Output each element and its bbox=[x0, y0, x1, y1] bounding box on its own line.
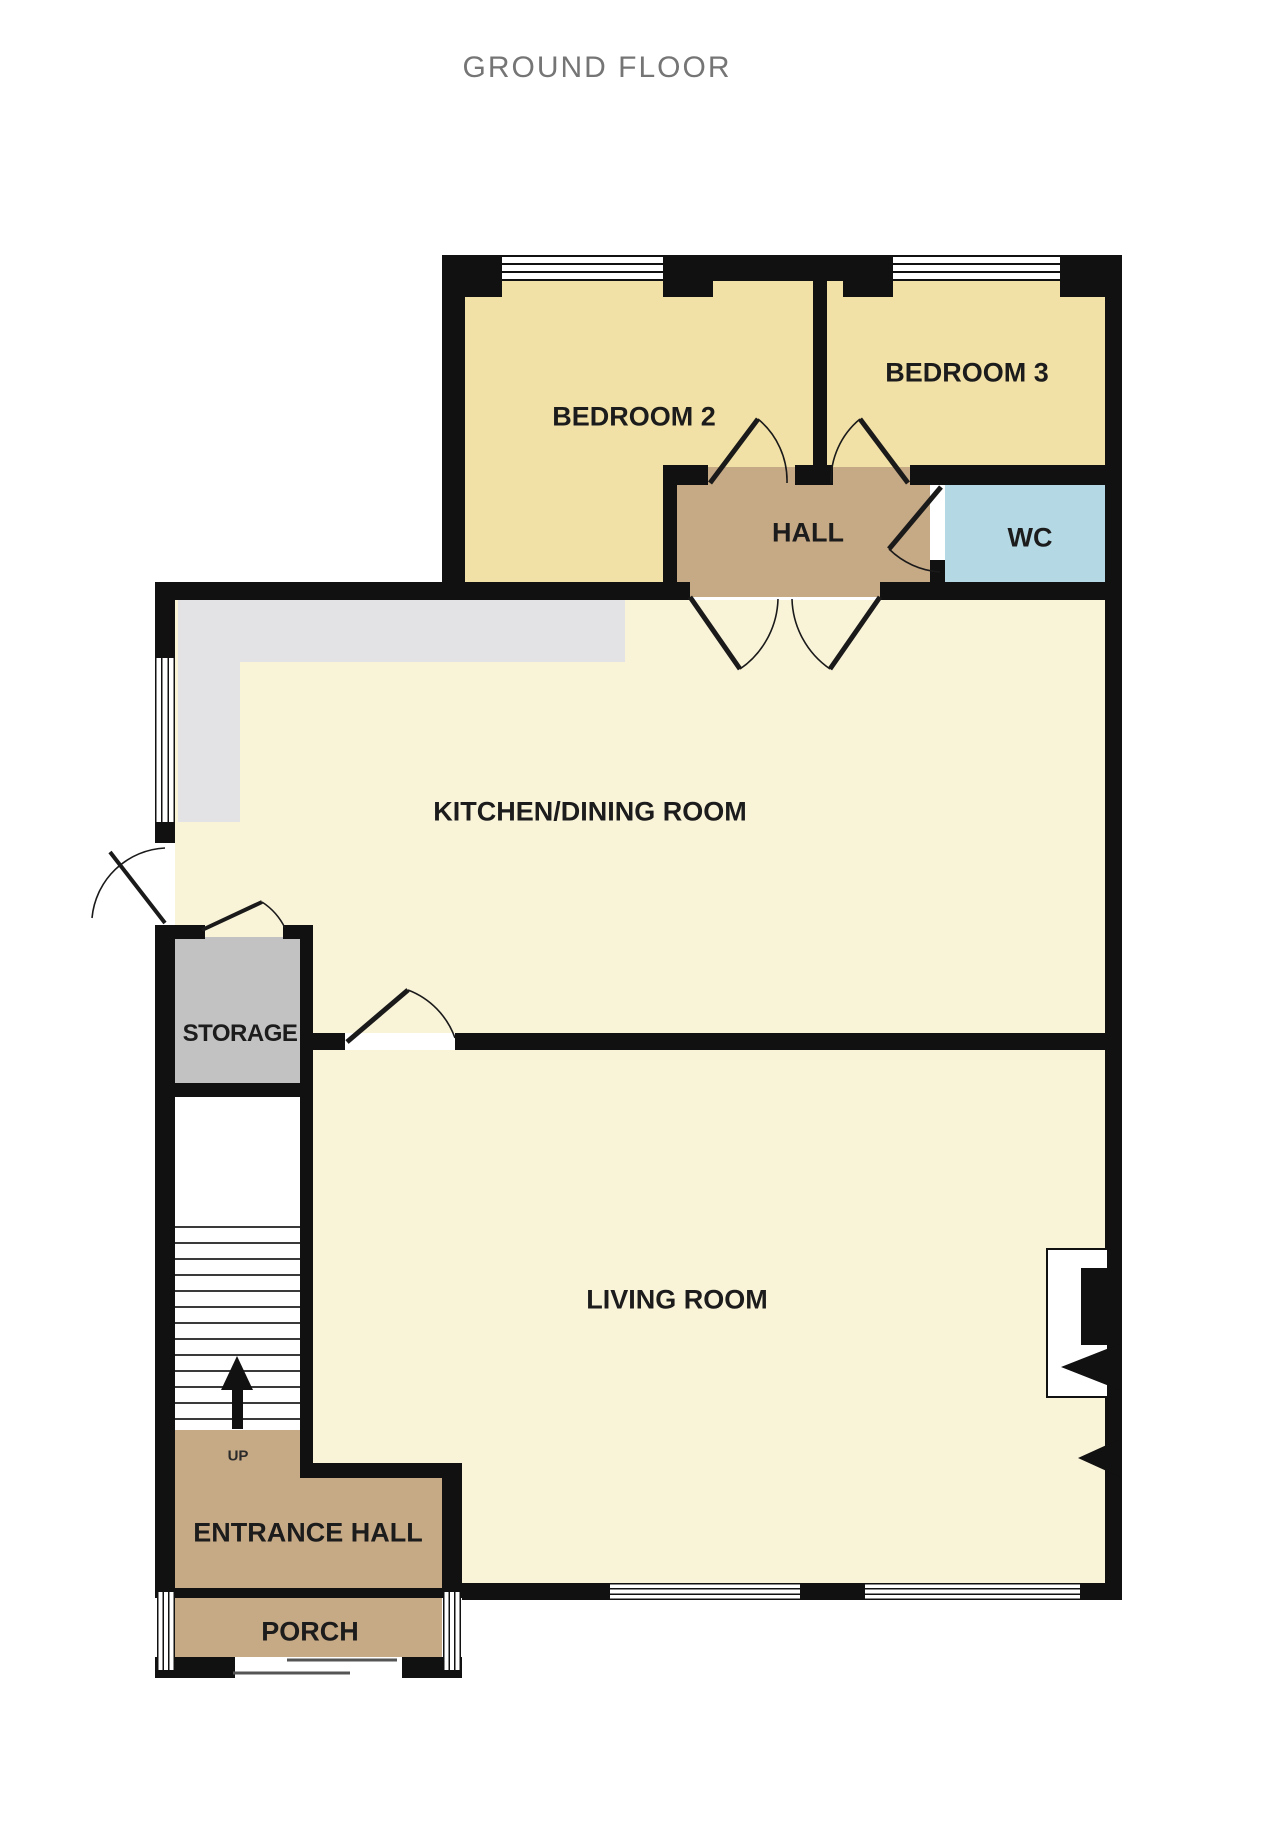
label-bedroom3: BEDROOM 3 bbox=[885, 358, 1049, 389]
label-storage: STORAGE bbox=[183, 1020, 298, 1048]
label-entrance-hall: ENTRANCE HALL bbox=[193, 1518, 423, 1549]
kitchen-living-door-icon bbox=[347, 990, 455, 1042]
label-hall: HALL bbox=[772, 518, 844, 549]
fireplace-icon bbox=[1061, 1268, 1122, 1478]
back-door-icon bbox=[92, 848, 165, 923]
plan-title: GROUND FLOOR bbox=[462, 51, 731, 85]
label-wc: WC bbox=[1008, 523, 1053, 554]
bedroom2-door-icon bbox=[710, 419, 787, 483]
porch-door-icon bbox=[233, 1660, 397, 1673]
plan-annotations bbox=[0, 0, 1280, 1838]
storage-door-icon bbox=[202, 902, 285, 930]
label-up: UP bbox=[228, 1448, 249, 1465]
label-bedroom2: BEDROOM 2 bbox=[552, 402, 716, 433]
wc-door-icon bbox=[889, 487, 941, 572]
floor-plan: GROUND FLOOR BEDROOM 2 BEDROOM 3 HALL WC… bbox=[0, 0, 1280, 1838]
hall-double-door-icon bbox=[690, 597, 880, 669]
bedroom3-door-icon bbox=[831, 419, 908, 483]
label-kitchen: KITCHEN/DINING ROOM bbox=[433, 797, 747, 828]
label-living-room: LIVING ROOM bbox=[586, 1285, 768, 1316]
label-porch: PORCH bbox=[261, 1617, 359, 1648]
